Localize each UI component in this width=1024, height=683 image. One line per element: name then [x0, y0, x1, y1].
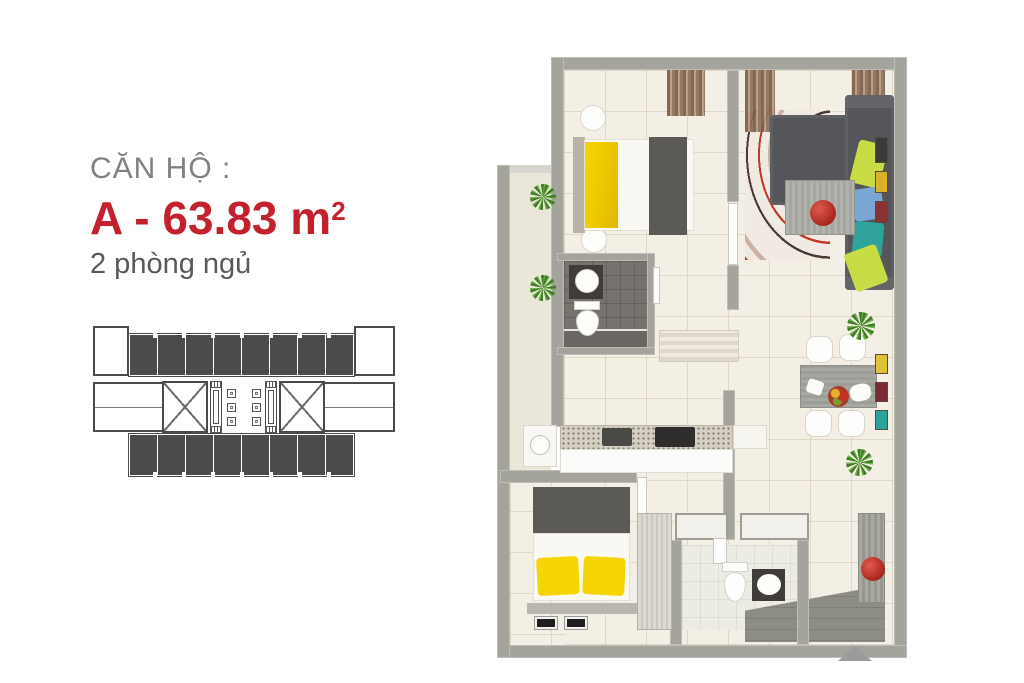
keyplan-lifts-right — [249, 381, 263, 433]
bedroom1-curtain — [667, 70, 705, 116]
balcony-edge — [510, 165, 551, 173]
apartment-area-value: A - 63.83 m — [90, 192, 331, 244]
living-wall-shelves-top — [875, 133, 888, 251]
floor-plan — [497, 57, 907, 658]
bedroom2-pillow-left — [536, 556, 580, 596]
coffee-table-red-decor — [810, 200, 836, 226]
keyplan-lift-icon — [252, 403, 261, 412]
keyplan-lift-icon — [227, 417, 236, 426]
keyplan-unit-cell — [326, 435, 353, 475]
keyplan-hatch-icon — [210, 426, 222, 433]
kitchen-counter-front — [560, 449, 733, 473]
wall-bedroom1-living-a — [727, 70, 739, 202]
wall-bathroom1-top — [557, 253, 655, 261]
bedroom2-mat-left — [535, 617, 557, 629]
wall-top — [551, 57, 907, 70]
bathroom1-shower — [564, 329, 647, 347]
half-wall-hall-right — [740, 513, 809, 540]
dining-chair — [838, 410, 865, 437]
kitchen-sink — [602, 428, 632, 446]
keyplan-lift-icon — [227, 389, 236, 398]
balcony-plant-middle — [530, 275, 556, 301]
keyplan-lifts-left — [224, 381, 238, 433]
keyplan-hatch-icon — [210, 381, 222, 388]
keyplan-unit-cell — [242, 335, 269, 375]
bathroom2-door — [713, 538, 727, 564]
shelf-box — [875, 410, 888, 430]
keyplan-unit-cell — [270, 335, 297, 375]
kitchen-bar-return — [733, 425, 767, 449]
keyplan-lift-icon — [252, 389, 261, 398]
keyplan-lift-icon — [227, 403, 236, 412]
shelf-box — [875, 354, 888, 374]
dining-fruit-bowl — [828, 386, 849, 407]
bathroom1-toilet-tank — [574, 301, 600, 310]
apartment-area-sup: 2 — [331, 196, 345, 226]
wall-bathroom1-bottom — [557, 347, 655, 355]
apartment-bedrooms: 2 phòng ngủ — [90, 248, 346, 281]
dining-plant — [846, 449, 873, 476]
balcony-plant-top — [530, 184, 556, 210]
keyplan-corridor-right — [322, 382, 395, 432]
shelf-box — [875, 382, 888, 402]
keyplan-unit-cell — [158, 435, 185, 475]
keyplan-unit-cell — [326, 335, 353, 375]
keyplan-bottom-notches — [128, 472, 355, 477]
keyplan-unit-cell — [186, 435, 213, 475]
keyplan-bottom-wing — [128, 433, 355, 477]
keyplan-unit-cell — [130, 335, 157, 375]
bedroom2-rug — [527, 603, 637, 614]
bedroom1-door — [728, 203, 738, 265]
bedroom2-mat-right — [565, 617, 587, 629]
balcony-washer-door — [530, 435, 550, 455]
entry-red-decor — [861, 557, 885, 581]
dining-wall-shelves — [875, 350, 888, 434]
wall-bedroom1-left — [551, 57, 564, 427]
keyplan-unit-cell — [158, 335, 185, 375]
hallway-rug — [659, 330, 739, 362]
keyplan-hatch-icon — [265, 381, 277, 388]
keyplan-corridor-left — [93, 382, 163, 432]
keyplan-unit-cell — [214, 435, 241, 475]
info-panel: CĂN HỘ : A - 63.83 m2 2 phòng ngủ — [90, 152, 346, 281]
keyplan-hatch-icon — [265, 426, 277, 433]
bathroom1-door — [653, 267, 660, 304]
half-wall-hall-left — [675, 513, 728, 540]
wall-bathroom2-right — [797, 540, 809, 645]
page: CĂN HỘ : A - 63.83 m2 2 phòng ngủ — [0, 0, 1024, 683]
keyplan-unit-cell — [298, 435, 325, 475]
keyplan-unit-cell — [298, 335, 325, 375]
keyplan-stair-core-right — [279, 381, 325, 433]
bedroom2-wardrobe — [637, 513, 672, 630]
keyplan-unit-cell — [130, 435, 157, 475]
wall-left — [497, 165, 510, 658]
keyplan-lift-icon — [252, 417, 261, 426]
keyplan-unit-cell — [214, 335, 241, 375]
building-key-plan — [93, 326, 395, 479]
bathroom2-toilet-tank — [722, 562, 748, 572]
bedroom1-yellow-blanket — [585, 142, 618, 228]
keyplan-corner-unit-bottom-left — [93, 326, 129, 376]
wall-right — [894, 57, 907, 658]
shelf-box — [875, 201, 888, 223]
dining-chair — [806, 336, 833, 363]
bedroom2-pillow-right — [582, 556, 626, 596]
bedroom1-bed-runner — [649, 137, 687, 235]
living-plant — [847, 312, 875, 340]
apartment-area: A - 63.83 m2 — [90, 194, 346, 242]
bedroom1-nightstand-top — [580, 105, 606, 131]
sofa-armrest-top — [845, 95, 894, 108]
bedroom2-blanket — [533, 487, 630, 533]
kitchen-stove — [655, 427, 695, 447]
bathroom1-sink — [575, 269, 599, 293]
keyplan-unit-cell — [270, 435, 297, 475]
bedroom2-door — [637, 477, 647, 517]
keyplan-top-notches — [128, 333, 355, 338]
keyplan-unit-cell — [242, 435, 269, 475]
wall-bedroom1-living-b — [727, 265, 739, 310]
bathroom2-sink — [757, 574, 781, 595]
keyplan-corner-unit-bottom-right — [354, 326, 395, 376]
keyplan-top-wing — [128, 333, 355, 377]
apartment-label: CĂN HỘ : — [90, 152, 346, 186]
entrance-arrow-icon — [838, 646, 872, 661]
keyplan-stair-core-left — [162, 381, 208, 433]
dining-chair — [805, 410, 832, 437]
shelf-box — [875, 137, 888, 163]
kitchen-counter-top — [560, 425, 733, 451]
keyplan-unit-cell — [186, 335, 213, 375]
shelf-box — [875, 171, 888, 193]
